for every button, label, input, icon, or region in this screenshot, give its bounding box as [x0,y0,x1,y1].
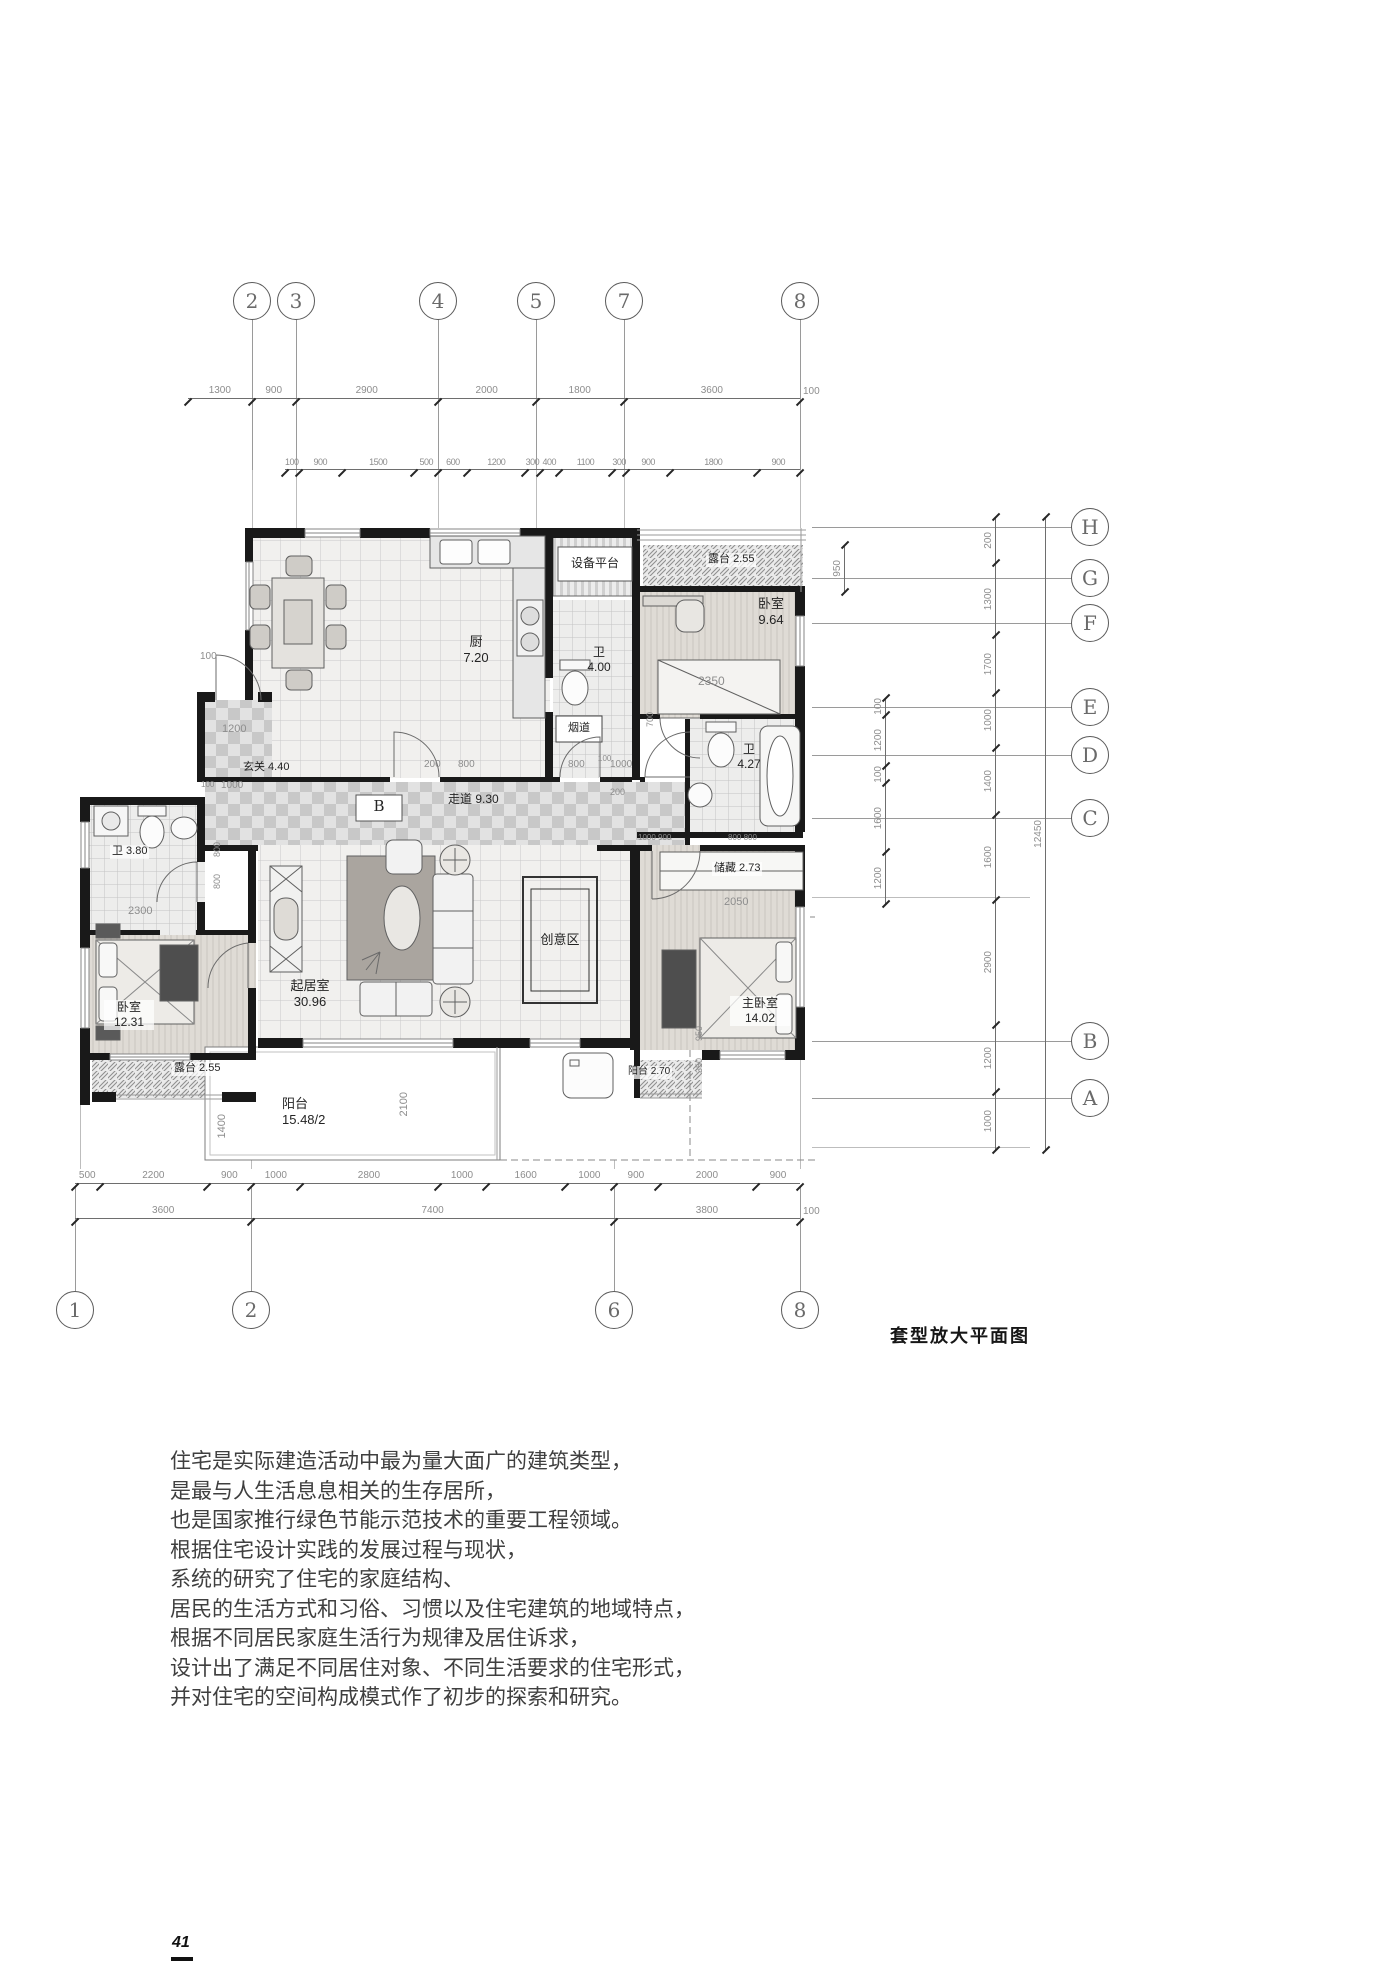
body-text-line: 并对住宅的空间构成模式作了初步的探索和研究。 [170,1683,730,1713]
dim-label-corridor-200b: 200 [610,787,625,797]
dim-segment: 1000 [438,1170,487,1183]
grid-line [800,1186,801,1292]
room-label-bedroom1: 卧室12.31 [104,1000,154,1030]
room-name: 卫 [582,645,616,660]
room-name: 阳台 [282,1096,325,1112]
dim-segment: 1600 [869,783,885,852]
body-text: 住宅是实际建造活动中最为量大面广的建筑类型， 是最与人生活息息相关的生存居所， … [170,1447,730,1713]
page-number-rule [171,1957,193,1961]
page-number: 41 [172,1934,190,1952]
grid-bubble-bottom-1: 1 [56,1291,94,1329]
grid-line [251,1186,252,1292]
room-area: 30.96 [282,994,338,1010]
dim-label-living-800a: 800 [212,842,222,857]
room-name: 卧室 [748,596,794,612]
floor-plan-drawing [70,515,815,1175]
dim-segment: 1000 [565,1170,614,1183]
grid-bubble-right-H: H [1071,508,1109,546]
grid-bubble-right-E: E [1071,688,1109,726]
dim-segment: 3600 [624,385,800,398]
dim-label-entry-100: 100 [200,651,217,662]
dim-label-living-800b: 800 [212,874,222,889]
dim-segment: 3600 [75,1205,251,1218]
dim-segment: 100 [869,766,885,783]
room-label-bath3: 卫 3.80 [110,845,149,859]
dim-segment: 1800 [670,457,757,469]
dim-segment: 500 [75,1170,100,1183]
grid-bubble-bottom-2: 2 [232,1291,270,1329]
dim-label-left-1400: 1400 [216,1114,228,1138]
dim-segment: 2900 [296,385,438,398]
dim-label-corridor-800: 800 [458,759,475,770]
dim-label-foyer-1200: 1200 [222,723,246,735]
dim-segment: 1000 [251,1170,300,1183]
dim-segment: 500 [414,457,438,469]
dim-segment: 900 [626,457,669,469]
room-label-terrace-top: 露台 2.55 [706,553,756,567]
grid-bubble-right-F: F [1071,604,1109,642]
dim-label-corridor-700: 700 [645,712,655,727]
dim-segment: 200 [979,517,995,563]
room-area: 4.27 [732,757,766,772]
dim-label-bottom-100: 100 [803,1206,820,1217]
dim-label-corridor-800b: 800 [568,759,585,770]
dim-segment: 1400 [979,748,995,815]
grid-bubble-top-5: 5 [517,282,555,320]
grid-line [800,319,801,470]
room-name: 露台 [708,553,730,565]
room-label-equipment-platform: 设备平台 [560,556,630,571]
dim-segment: 2900 [979,900,995,1025]
dim-label-balcony-2100: 2100 [398,1092,410,1116]
body-text-line: 根据住宅设计实践的发展过程与现状， [170,1536,730,1566]
room-name: 主卧室 [732,996,788,1011]
grid-bubble-top-8: 8 [781,282,819,320]
dim-label-corridor-row2b: 800 800 [728,833,757,842]
dim-segment: 2800 [300,1170,437,1183]
grid-bubble-right-C: C [1071,799,1109,837]
dim-label-master-2050: 2050 [724,896,748,908]
room-name: 卧室 [106,1000,152,1015]
room-area: 2.55 [733,553,754,565]
dim-segment: 900 [299,457,342,469]
figure-caption: 套型放大平面图 [890,1322,1030,1348]
dim-label-master-950: 950 [694,1026,704,1041]
dim-segment: 950 [830,545,844,592]
dim-segment: 900 [757,457,800,469]
room-area: 14.02 [732,1011,788,1026]
dim-label-corridor-row2a: 1000 900 [638,833,671,842]
dim-row-right-total: 12450 [1029,517,1046,1150]
room-area: 4.00 [582,660,616,675]
dim-row-top-outer: 13009002900200018003600 [188,384,800,399]
dim-segment: 1600 [979,815,995,900]
grid-bubble-right-G: G [1071,559,1109,597]
dim-label-foyer-100: 100 [201,780,214,789]
dim-label-bed2-2350: 2350 [698,674,725,688]
room-name: 厨 [456,634,496,650]
dim-row-top-inner: 1009001500500600120030040011003009001800… [285,455,800,470]
room-label-storage: 储藏 2.73 [712,862,762,876]
room-label-corridor: 走道 9.30 [448,792,499,807]
dim-segment: 1200 [869,852,885,904]
grid-bubble-bottom-6: 6 [595,1291,633,1329]
body-text-line: 是最与人生活息息相关的生存居所， [170,1477,730,1507]
room-label-bedroom2: 卧室9.64 [748,596,794,629]
dim-row-bottom-inner: 5002200900100028001000160010009002000900 [75,1169,800,1184]
grid-bubble-top-3: 3 [277,282,315,320]
dim-segment: 1700 [979,635,995,693]
dim-row-terrace-950: 950 [830,545,845,592]
dim-label-corridor-200: 200 [424,759,441,770]
dim-label-foyer-1000: 1000 [221,780,243,791]
dim-segment: 300 [612,457,626,469]
body-text-line: 系统的研究了住宅的家庭结构、 [170,1565,730,1595]
dim-row-right-outer: 20013001700100014001600290012001000 [979,517,996,1150]
dim-segment: 600 [438,457,467,469]
body-text-line: 根据不同居民家庭生活行为规律及居住诉求， [170,1624,730,1654]
room-area: 12.31 [106,1015,152,1030]
room-area: 7.20 [456,650,496,666]
dim-segment: 7400 [251,1205,614,1218]
room-area: 9.64 [748,612,794,628]
dim-segment: 1100 [559,457,612,469]
dim-segment: 2000 [438,385,536,398]
room-label-flue: 烟道 [558,722,600,736]
body-text-line: 居民的生活方式和习俗、习惯以及住宅建筑的地域特点， [170,1595,730,1625]
dim-segment: 900 [252,385,296,398]
book-page: { "doc": { "page_number": "41", "caption… [0,0,1400,1980]
grid-line [614,1186,615,1292]
grid-bubble-top-2: 2 [233,282,271,320]
dim-label-top-100: 100 [803,386,820,397]
dim-segment: 1000 [979,1092,995,1150]
dim-segment: 12450 [1029,517,1045,1150]
dim-segment: 2000 [658,1170,756,1183]
dim-segment: 900 [207,1170,251,1183]
dim-segment: 1000 [979,693,995,748]
dim-segment: 1500 [342,457,414,469]
grid-bubble-top-4: 4 [419,282,457,320]
dim-segment: 900 [614,1170,658,1183]
room-label-kitchen: 厨7.20 [456,634,496,667]
dim-segment: 1200 [869,715,885,767]
grid-bubble-bottom-8: 8 [781,1291,819,1329]
grid-bubble-top-7: 7 [605,282,643,320]
dim-segment: 900 [756,1170,800,1183]
room-label-master-bedroom: 主卧室14.02 [730,996,790,1026]
dim-segment: 1300 [979,563,995,635]
grid-bubble-right-B: B [1071,1022,1109,1060]
grid-bubble-right-D: D [1071,736,1109,774]
room-label-foyer: 玄关 4.40 [243,761,289,775]
dim-segment: 3800 [614,1205,800,1218]
dim-segment: 100 [285,457,299,469]
dim-segment: 1300 [188,385,252,398]
dim-segment: 300 [525,457,539,469]
grid-bubble-right-A: A [1071,1079,1109,1117]
body-text-line: 设计出了满足不同居住对象、不同生活要求的住宅形式， [170,1654,730,1684]
dim-segment: 100 [869,698,885,715]
room-area: 15.48/2 [282,1112,325,1128]
room-label-bath-small: 卫4.00 [582,645,616,675]
dim-segment: 400 [540,457,559,469]
body-text-line: 住宅是实际建造活动中最为量大面广的建筑类型， [170,1447,730,1477]
section-mark-B: B [368,797,390,816]
room-label-creative-zone: 创意区 [532,932,588,948]
body-text-line: 也是国家推行绿色节能示范技术的重要工程领域。 [170,1506,730,1536]
room-label-balcony: 阳台15.48/2 [282,1096,325,1129]
dim-label-master-350: 350 [694,1058,704,1073]
dim-label-corridor-1000: 1000 [610,759,632,770]
room-label-terrace-left: 露台 2.55 [172,1062,222,1076]
room-label-balcony-small: 阳台 2.70 [626,1066,672,1079]
room-label-living: 起居室30.96 [282,978,338,1011]
dim-segment: 1800 [536,385,624,398]
dim-segment: 1600 [486,1170,564,1183]
room-name: 卫 [732,742,766,757]
room-label-bath2: 卫4.27 [732,742,766,772]
room-name: 起居室 [282,978,338,994]
dim-segment: 1200 [467,457,525,469]
dim-label-bed1-2300: 2300 [128,905,152,917]
dim-row-bottom-outer: 360074003800 [75,1204,800,1219]
dim-row-right-inner: 100120010016001200 [869,698,886,904]
dim-segment: 2200 [100,1170,208,1183]
grid-line [75,1186,76,1292]
dim-segment: 1200 [979,1025,995,1092]
